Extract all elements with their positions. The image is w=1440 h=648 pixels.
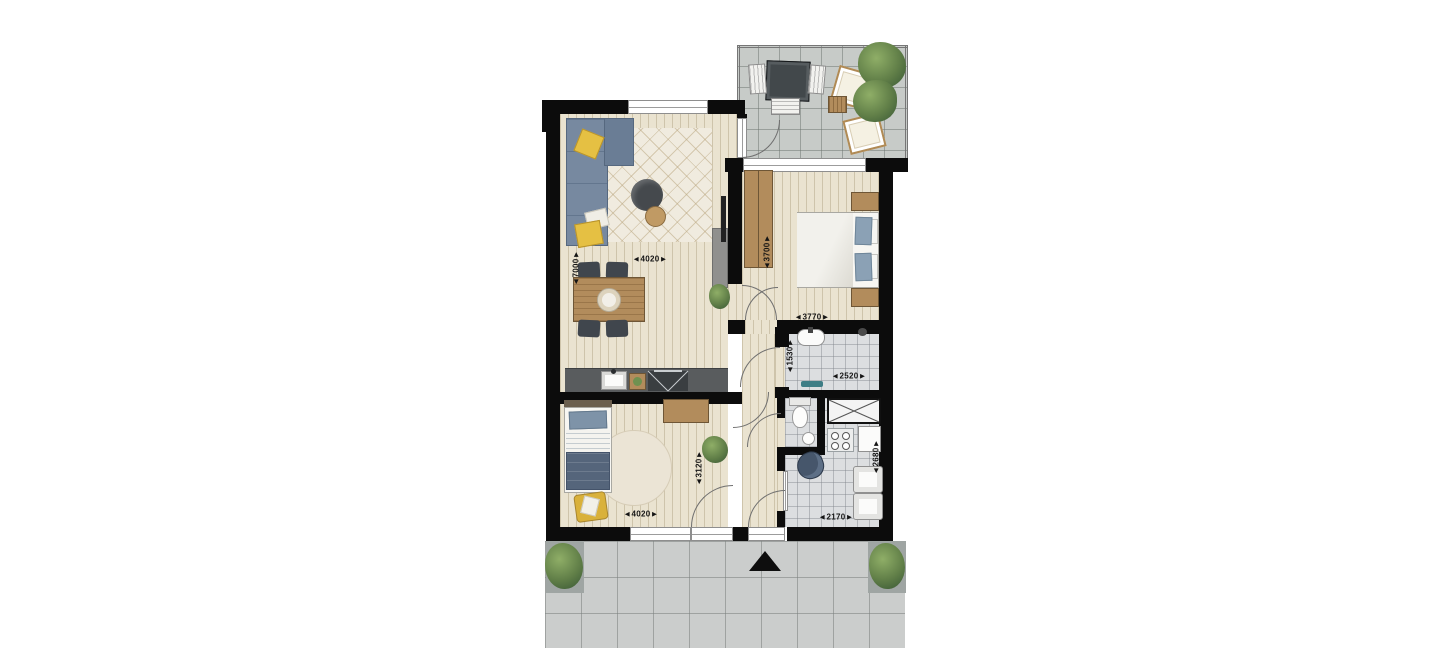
dim-bedroom1-width: ◄3770► bbox=[794, 313, 829, 322]
plant-icon bbox=[702, 436, 728, 463]
nightstand bbox=[851, 288, 879, 307]
bed2-pillow bbox=[569, 410, 608, 429]
plant-icon bbox=[709, 284, 730, 309]
wall bbox=[725, 158, 743, 172]
bedroom-1-doorway-floor bbox=[745, 320, 777, 334]
bed2-sheet bbox=[566, 430, 610, 454]
plant-icon bbox=[853, 80, 897, 122]
water-manifold bbox=[827, 428, 854, 452]
vegetables bbox=[633, 377, 642, 386]
window-living bbox=[628, 100, 708, 114]
dim-utility-depth: ◄2680► bbox=[872, 439, 881, 474]
dim-bedroom2-width: ◄4020► bbox=[623, 510, 658, 519]
wall-top bbox=[546, 100, 628, 114]
bath-mat bbox=[801, 381, 823, 387]
balcony-chair bbox=[771, 98, 800, 115]
dim-bathroom-width: ◄2520► bbox=[831, 372, 866, 381]
table-centerpiece bbox=[597, 288, 621, 312]
wall-bottom bbox=[546, 527, 630, 541]
balcony-chair bbox=[808, 64, 826, 94]
shaft bbox=[827, 398, 881, 424]
desk bbox=[663, 399, 709, 423]
dining-chair bbox=[606, 320, 629, 338]
french-door-bedroom2 bbox=[691, 527, 733, 541]
dim-bathroom-depth: ◄1530► bbox=[786, 338, 795, 373]
sofa-pillow-yellow bbox=[574, 220, 604, 248]
plant-icon bbox=[869, 543, 905, 589]
sink-faucet bbox=[808, 327, 813, 333]
wall bbox=[728, 320, 745, 334]
balcony-railing-left bbox=[737, 45, 741, 103]
cooktop bbox=[648, 371, 688, 391]
balcony-side-table bbox=[828, 96, 847, 113]
dim-living-width: ◄4020► bbox=[632, 255, 667, 264]
dim-bedroom2-depth: ◄3120► bbox=[695, 450, 704, 485]
dining-chair bbox=[578, 319, 601, 337]
nightstand bbox=[851, 192, 879, 211]
entrance-marker-icon bbox=[749, 551, 781, 571]
kitchen-counter bbox=[565, 368, 728, 392]
floor-plan-canvas: ◄7000► ◄4020► ◄3700► ◄3770► ◄1530► ◄2520… bbox=[0, 0, 1440, 648]
tv bbox=[721, 196, 726, 242]
wall-left bbox=[546, 100, 560, 541]
wall-top bbox=[708, 100, 745, 114]
bed-pillow-blue bbox=[855, 253, 873, 282]
shower-head bbox=[858, 328, 867, 336]
bed2-headboard bbox=[564, 400, 612, 407]
dim-utility-width: ◄2170► bbox=[818, 513, 853, 522]
wall-bottom bbox=[787, 527, 893, 541]
dryer bbox=[853, 493, 883, 520]
wall-bedroom1-bottom bbox=[777, 320, 893, 334]
toilet-tank bbox=[789, 397, 811, 406]
balcony-table bbox=[765, 60, 810, 102]
front-door bbox=[748, 527, 785, 541]
balcony-chair bbox=[748, 63, 767, 94]
sofa-chaise bbox=[604, 118, 634, 166]
window-bedroom2 bbox=[630, 527, 691, 541]
dim-bedroom1-depth: ◄3700► bbox=[763, 234, 772, 269]
wc-hand-basin bbox=[802, 432, 815, 445]
dim-living-height: ◄7000► bbox=[572, 250, 581, 285]
terrace-floor bbox=[545, 541, 905, 648]
wall-bottom bbox=[733, 527, 748, 541]
wall-living-bedroom1 bbox=[728, 158, 742, 284]
bed-duvet bbox=[797, 213, 853, 287]
wall-wc bbox=[817, 393, 825, 455]
hall-doorway-floor bbox=[728, 284, 742, 320]
wall-utility bbox=[777, 455, 785, 471]
toilet-bowl bbox=[792, 406, 808, 428]
living-room-floor bbox=[728, 114, 737, 158]
bed-pillow-blue bbox=[855, 217, 873, 246]
kitchen-faucet bbox=[611, 369, 616, 374]
plant-icon bbox=[545, 543, 583, 589]
bed2-blanket bbox=[566, 452, 610, 490]
side-table bbox=[645, 206, 666, 227]
